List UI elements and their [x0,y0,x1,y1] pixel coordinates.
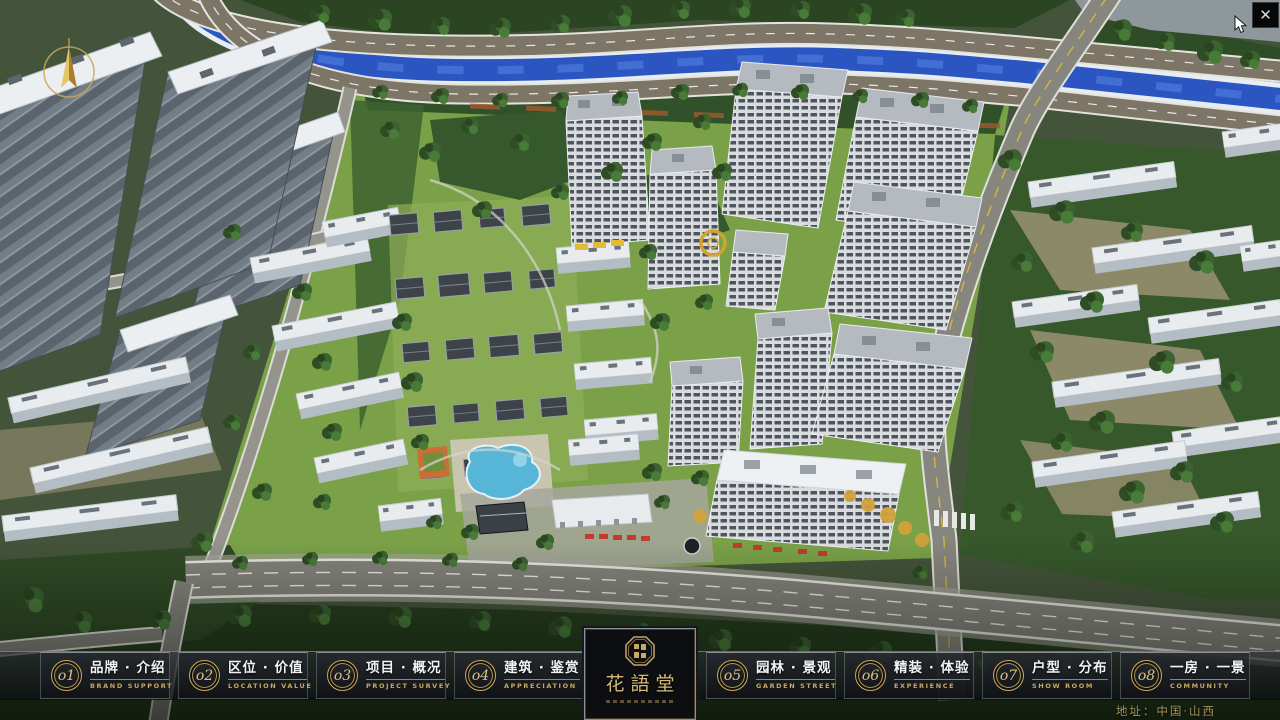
project-seal-icon [624,635,656,667]
menu-badge-o4: o4 [465,660,496,691]
menu-label-en: LOCATION VALUE [228,679,307,690]
menu-label-zh: 项目 · 概况 [366,661,445,677]
menu-badge-o2: o2 [189,660,220,691]
menu-item-project[interactable]: o3 项目 · 概况 PROJECT SURVEY [316,652,446,699]
menu-badge-o3: o3 [327,660,358,691]
project-title: 花語堂 [599,669,680,696]
masterplan-render [0,0,1280,720]
menu-label-en: BRAND SUPPORT [90,679,169,690]
address-text: 地址：中国·山西 [1116,703,1216,719]
menu-item-location[interactable]: o2 区位 · 价值 LOCATION VALUE [178,652,308,699]
menu-badge-o7: o7 [993,660,1024,691]
menu-badge-o1: o1 [51,660,82,691]
menu-label-zh: 品牌 · 介绍 [90,661,169,677]
menu-item-views[interactable]: o8 一房 · 一景 COMMUNITY [1120,652,1250,699]
menu-label-zh: 一房 · 一景 [1170,661,1246,677]
menu-label-en: GARDEN STREET [756,679,835,690]
compass-icon [38,36,100,102]
menu-item-brand[interactable]: o1 品牌 · 介绍 BRAND SUPPORT [40,652,170,699]
close-icon: ✕ [1259,8,1272,23]
project-subtitle-decor [606,700,674,703]
menu-label-en: EXPERIENCE [894,679,970,690]
menu-label-zh: 区位 · 价值 [228,661,307,677]
close-button[interactable]: ✕ [1252,2,1279,28]
menu-label-zh: 户型 · 分布 [1032,661,1108,677]
menu-label-en: APPRECIATION [504,679,580,690]
menu-label-en: PROJECT SURVEY [366,679,445,690]
masterplan-app: ✕ o1 品牌 · 介绍 BRAND SUPPORT o2 区位 · 价值 LO… [0,0,1280,720]
menu-badge-o8: o8 [1131,660,1162,691]
menu-badge-o6: o6 [855,660,886,691]
menu-item-interior[interactable]: o6 精装 · 体验 EXPERIENCE [844,652,974,699]
menu-label-zh: 园林 · 景观 [756,661,835,677]
menu-label-en: COMMUNITY [1170,679,1246,690]
menu-badge-o5: o5 [717,660,748,691]
menu-label-zh: 精装 · 体验 [894,661,970,677]
menu-item-architecture[interactable]: o4 建筑 · 鉴赏 APPRECIATION [454,652,584,699]
menu-item-floorplan[interactable]: o7 户型 · 分布 SHOW ROOM [982,652,1112,699]
menu-label-en: SHOW ROOM [1032,679,1108,690]
menu-item-garden[interactable]: o5 园林 · 景观 GARDEN STREET [706,652,836,699]
menu-label-zh: 建筑 · 鉴赏 [504,661,580,677]
project-logo-panel[interactable]: 花語堂 [584,628,696,720]
